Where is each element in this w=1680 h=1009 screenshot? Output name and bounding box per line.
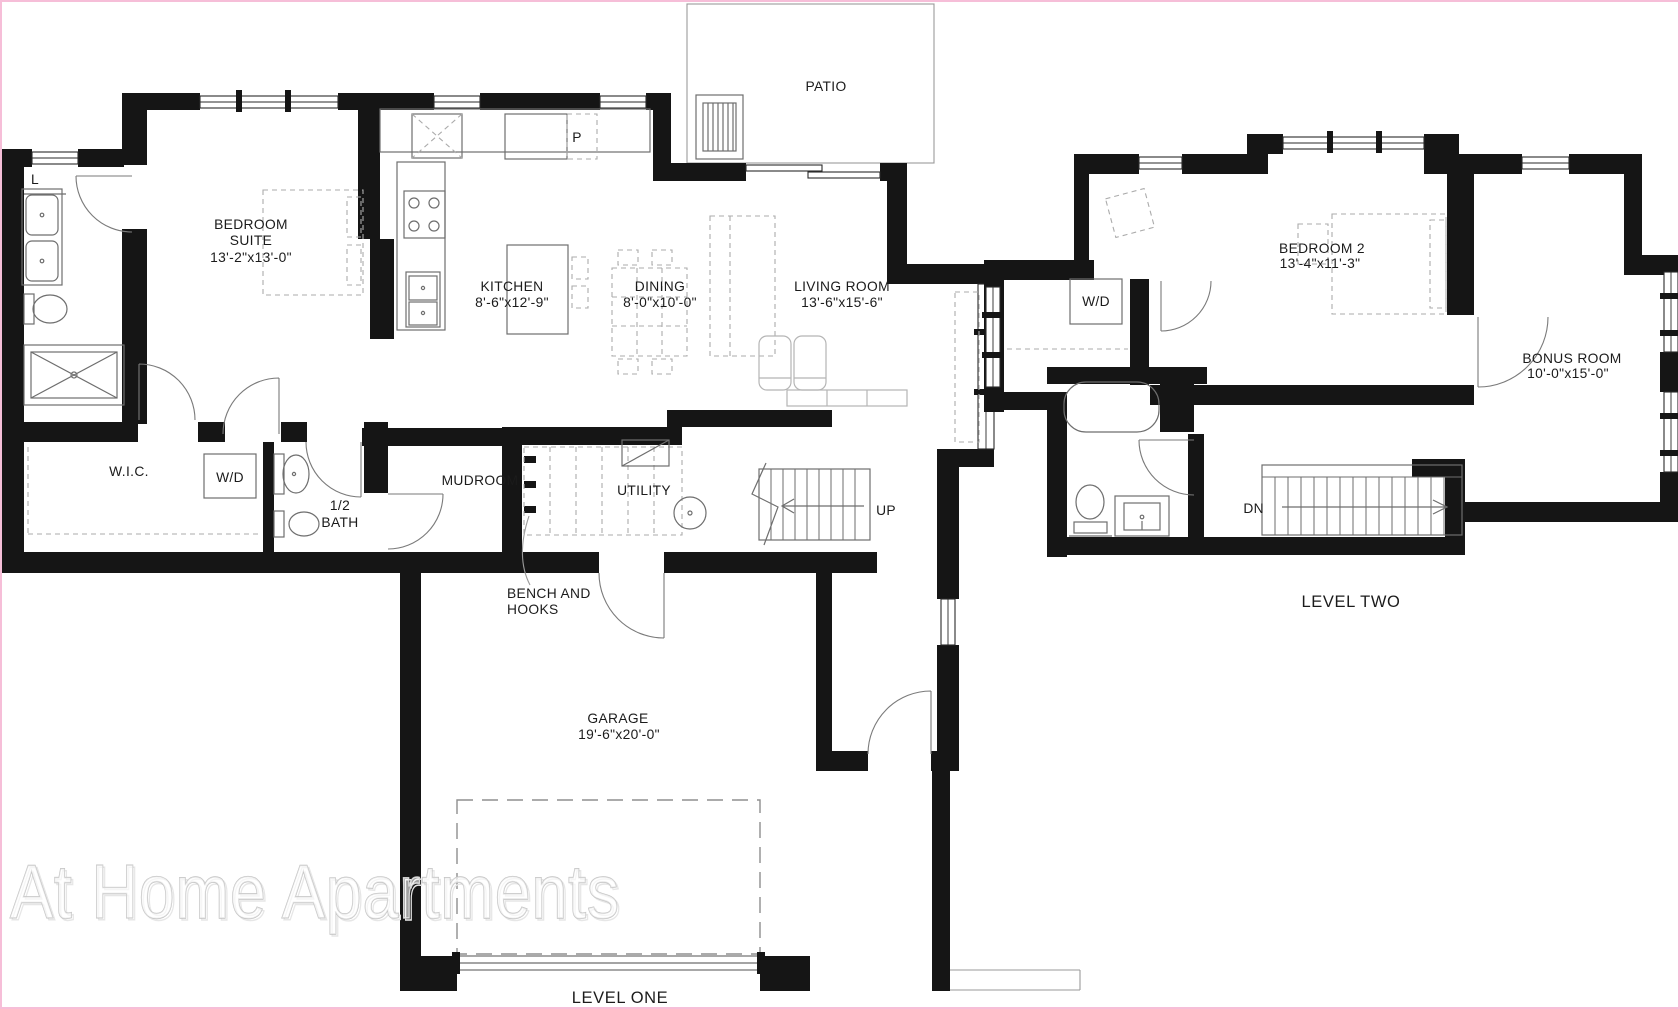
sliding-patio-door [746, 165, 880, 178]
bonus-room-dims: 10'-0"x15'-0" [1527, 366, 1609, 381]
garage-door [599, 573, 664, 638]
double-vanity-icon [22, 189, 62, 285]
linen-label: L [31, 172, 39, 187]
window [1139, 157, 1182, 169]
down-label: DN [1243, 501, 1264, 516]
bedroom2-dims: 13'-4"x11'-3" [1280, 256, 1361, 271]
range-icon [404, 191, 445, 238]
patio-label: PATIO [805, 79, 846, 94]
bedroom2-door [1161, 281, 1211, 331]
kitchen-label: KITCHEN [480, 279, 543, 294]
garage-dims: 19'-6"x20'-0" [578, 727, 660, 742]
dining-label: DINING [635, 279, 685, 294]
stairs-up [752, 463, 870, 545]
level-two-caption: LEVEL TWO [1302, 593, 1401, 611]
pantry-label: P [572, 130, 582, 145]
kitchen-sink-icon [406, 272, 440, 327]
bench-hooks-label: BENCH AND [507, 586, 591, 601]
half-bath-label: 1/2 [330, 498, 350, 513]
half-bath-label: BATH [321, 515, 358, 530]
living-room-label: LIVING ROOM [794, 279, 890, 294]
up-label: UP [876, 503, 896, 518]
bathroom2-door [1139, 440, 1194, 495]
bedroom-door [223, 378, 279, 434]
garage-overhead-door [452, 952, 765, 974]
shower-icon [24, 345, 124, 405]
bedroom-suite-dims: 13'-2"x13'-0" [210, 250, 292, 265]
wic-shelving [28, 447, 259, 534]
entry-door [868, 691, 931, 754]
level-one-caption: LEVEL ONE [572, 989, 669, 1007]
bedroom2-label: BEDROOM 2 [1279, 241, 1365, 256]
mudroom-door [388, 494, 443, 549]
level-two-plan: BEDROOM 2 13'-4"x11'-3" BONUS ROOM 10'-0… [982, 131, 1678, 611]
window [434, 96, 480, 108]
window [1660, 272, 1678, 352]
washer-dryer-label: W/D [216, 470, 244, 485]
bonus-room-label: BONUS ROOM [1522, 351, 1621, 366]
walkway [950, 970, 1080, 990]
water-heater-icon [674, 497, 706, 529]
stair-direction-arrow [1282, 500, 1447, 514]
window [1660, 392, 1678, 472]
watermark-text: At Home Apartments [10, 850, 620, 935]
utility-fixtures [524, 440, 706, 535]
window [1522, 157, 1569, 169]
level-two-furniture [1106, 189, 1446, 314]
half-bath-toilet-icon [274, 511, 319, 537]
wic-door [139, 364, 195, 420]
grill-icon [696, 95, 743, 159]
bench-hooks-label: HOOKS [507, 602, 559, 617]
window [32, 152, 78, 164]
watermark: At Home Apartments At Home Apartments [10, 850, 622, 937]
living-room-dims: 13'-6"x15'-6" [801, 295, 883, 310]
level-two-walls [984, 134, 1678, 557]
refrigerator-icon [412, 114, 462, 158]
window [1283, 131, 1424, 153]
bedroom-suite-label: SUITE [230, 233, 272, 248]
stair-break-line [752, 463, 778, 545]
half-bath-sink-icon [274, 454, 309, 494]
mudroom-label: MUDROOM [442, 473, 519, 488]
half-bath-door [306, 442, 361, 497]
floorplan-canvas: PATIO BEDROOM SUITE 13'-2"x13'-0" KITCHE… [2, 2, 1678, 1007]
window [941, 599, 955, 645]
utility-label: UTILITY [617, 483, 671, 498]
window [200, 90, 338, 112]
wic-label: W.I.C. [109, 464, 149, 479]
kitchen-dims: 8'-6"x12'-9" [475, 295, 549, 310]
vanity-sink-icon [1115, 496, 1169, 536]
window [600, 96, 646, 108]
bath-door [76, 176, 132, 232]
washer-dryer-label: W/D [1082, 294, 1110, 309]
stair-direction-arrow [782, 499, 864, 513]
floorplan-page: PATIO BEDROOM SUITE 13'-2"x13'-0" KITCHE… [0, 0, 1680, 1009]
bathtub-icon [1064, 382, 1159, 432]
dining-dims: 8'-0"x10'-0" [623, 295, 697, 310]
garage-label: GARAGE [587, 711, 648, 726]
bedroom-suite-label: BEDROOM [214, 217, 288, 232]
toilet-icon [24, 294, 67, 324]
toilet-icon [1069, 485, 1112, 536]
